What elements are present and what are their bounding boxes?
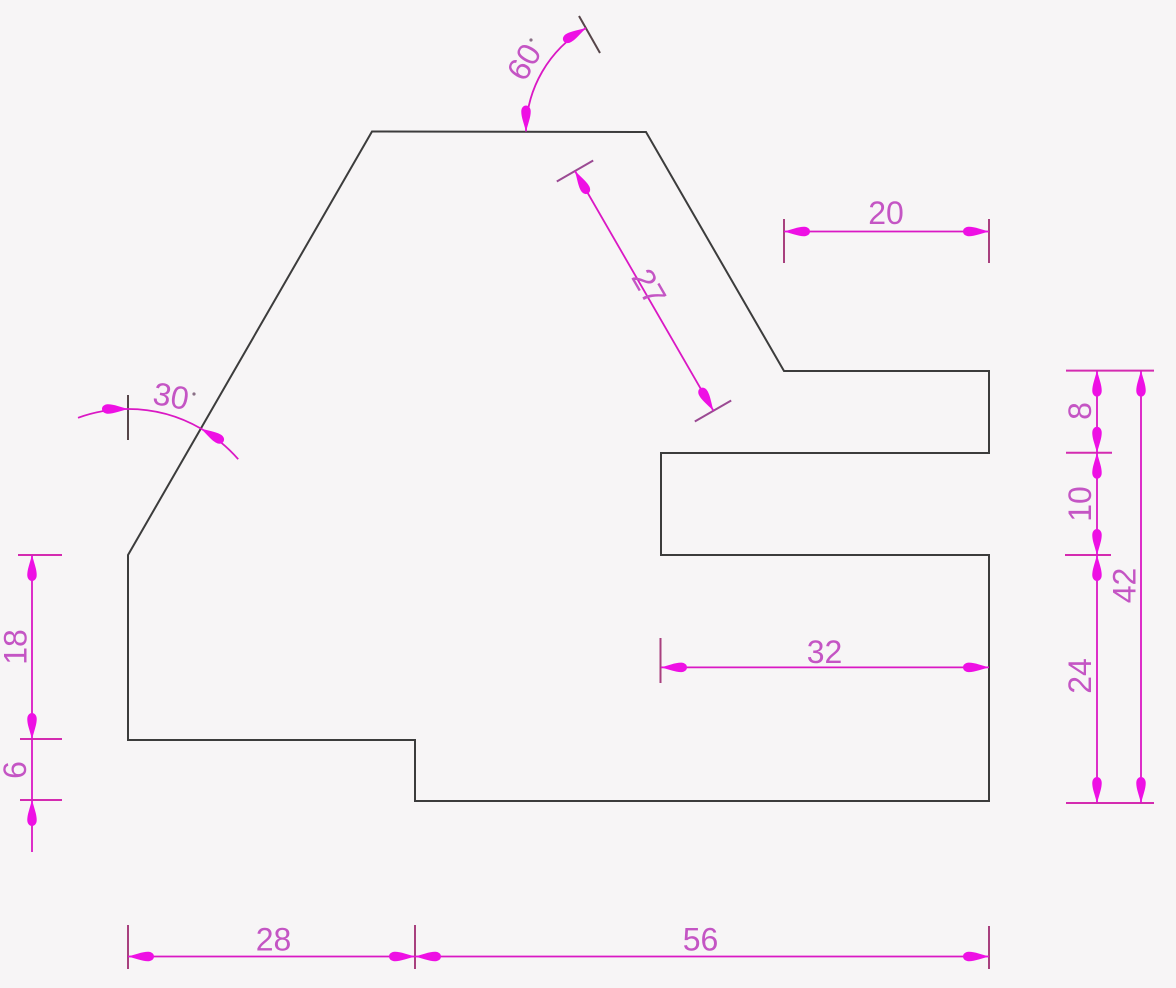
svg-text:24: 24 [1062,658,1098,694]
svg-text:32: 32 [807,634,843,670]
svg-text:10: 10 [1062,486,1098,522]
svg-text:30: 30 [150,375,191,417]
svg-text:6: 6 [0,761,33,779]
svg-text:42: 42 [1107,568,1143,604]
svg-text:20: 20 [868,195,904,231]
svg-text:8: 8 [1062,402,1098,420]
svg-text:18: 18 [0,629,34,665]
svg-text:28: 28 [256,922,292,958]
svg-text:56: 56 [683,922,719,958]
